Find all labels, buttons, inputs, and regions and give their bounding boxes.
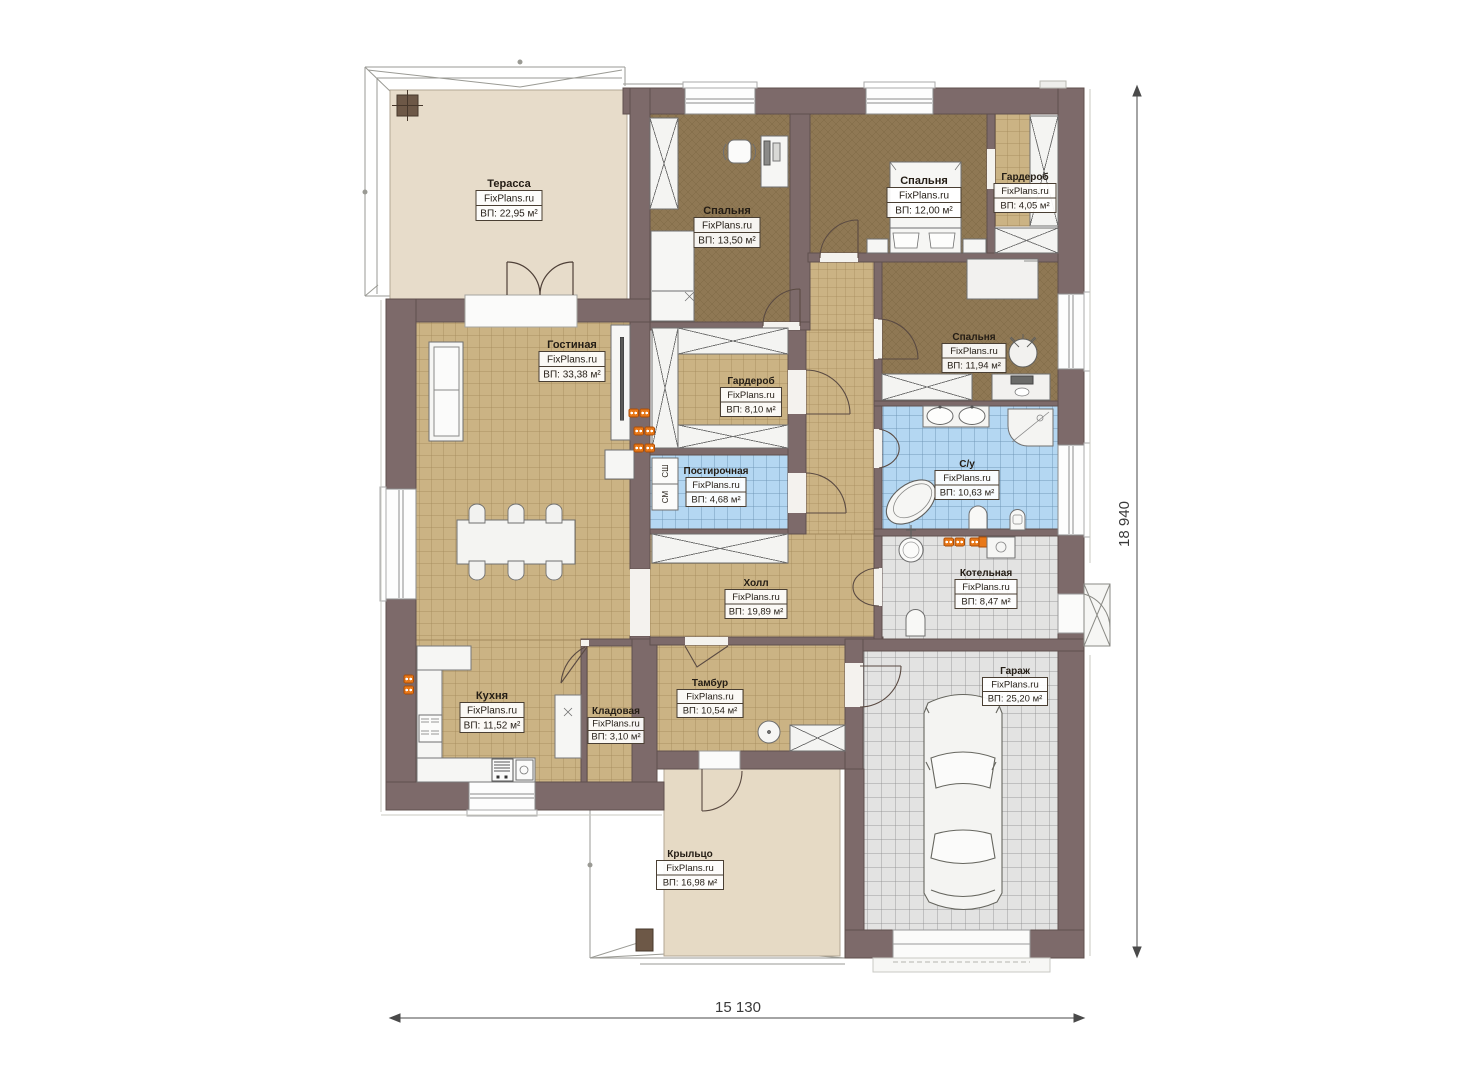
svg-text:ВП: 4,05 м²: ВП: 4,05 м²	[1000, 201, 1049, 212]
svg-text:ВП: 16,98 м²: ВП: 16,98 м²	[663, 878, 718, 889]
svg-text:ВП: 13,50 м²: ВП: 13,50 м²	[698, 236, 756, 247]
svg-text:ВП: 11,94 м²: ВП: 11,94 м²	[947, 361, 1001, 372]
svg-text:Тамбур: Тамбур	[692, 677, 728, 689]
svg-text:ВП: 22,95 м²: ВП: 22,95 м²	[480, 209, 538, 220]
svg-text:ВП: 3,10 м²: ВП: 3,10 м²	[591, 732, 640, 743]
svg-text:С/у: С/у	[959, 459, 975, 470]
svg-text:Гостиная: Гостиная	[547, 339, 597, 351]
svg-text:СМ: СМ	[661, 490, 670, 503]
svg-text:Гараж: Гараж	[1000, 666, 1031, 677]
svg-text:FixPlans.ru: FixPlans.ru	[702, 221, 752, 232]
svg-text:18 940: 18 940	[1116, 501, 1133, 547]
svg-text:FixPlans.ru: FixPlans.ru	[1001, 186, 1049, 197]
svg-text:ВП: 11,52 м²: ВП: 11,52 м²	[464, 721, 521, 732]
svg-text:ВП: 10,54 м²: ВП: 10,54 м²	[683, 706, 738, 717]
svg-text:Кухня: Кухня	[476, 690, 508, 702]
svg-text:FixPlans.ru: FixPlans.ru	[686, 692, 734, 703]
svg-text:ВП: 10,63 м²: ВП: 10,63 м²	[940, 488, 995, 499]
svg-text:FixPlans.ru: FixPlans.ru	[484, 194, 534, 205]
svg-text:FixPlans.ru: FixPlans.ru	[899, 191, 949, 202]
svg-text:Котельная: Котельная	[960, 568, 1013, 579]
svg-text:FixPlans.ru: FixPlans.ru	[547, 355, 597, 366]
svg-text:FixPlans.ru: FixPlans.ru	[467, 706, 517, 717]
svg-text:FixPlans.ru: FixPlans.ru	[692, 480, 740, 491]
svg-text:ВП: 8,47 м²: ВП: 8,47 м²	[961, 597, 1010, 608]
svg-text:Спальня: Спальня	[703, 205, 751, 217]
svg-text:ВП: 25,20 м²: ВП: 25,20 м²	[988, 694, 1043, 705]
svg-text:FixPlans.ru: FixPlans.ru	[592, 719, 640, 730]
svg-text:FixPlans.ru: FixPlans.ru	[991, 680, 1039, 691]
svg-text:Постирочная: Постирочная	[684, 466, 749, 477]
svg-text:FixPlans.ru: FixPlans.ru	[666, 863, 714, 874]
svg-text:Терасса: Терасса	[487, 178, 531, 190]
svg-text:ВП: 4,68 м²: ВП: 4,68 м²	[691, 495, 740, 506]
svg-text:FixPlans.ru: FixPlans.ru	[962, 582, 1010, 593]
svg-text:ВП: 12,00 м²: ВП: 12,00 м²	[895, 206, 953, 217]
svg-text:ВП: 19,89 м²: ВП: 19,89 м²	[729, 607, 784, 618]
svg-text:15 130: 15 130	[715, 999, 761, 1016]
svg-text:Спальня: Спальня	[900, 175, 948, 187]
svg-text:Гардероб: Гардероб	[727, 375, 774, 387]
svg-text:FixPlans.ru: FixPlans.ru	[727, 390, 775, 401]
svg-text:Гардероб: Гардероб	[1001, 171, 1048, 183]
svg-text:Холл: Холл	[743, 578, 768, 589]
svg-text:СШ: СШ	[661, 464, 670, 477]
svg-text:Спальня: Спальня	[952, 332, 995, 343]
svg-text:FixPlans.ru: FixPlans.ru	[950, 346, 998, 357]
svg-text:FixPlans.ru: FixPlans.ru	[732, 592, 780, 603]
svg-text:ВП: 33,38 м²: ВП: 33,38 м²	[543, 370, 601, 381]
svg-text:ВП: 8,10 м²: ВП: 8,10 м²	[726, 405, 775, 416]
svg-text:Кладовая: Кладовая	[592, 706, 640, 717]
svg-text:FixPlans.ru: FixPlans.ru	[943, 473, 991, 484]
svg-text:Крыльцо: Крыльцо	[667, 849, 713, 860]
